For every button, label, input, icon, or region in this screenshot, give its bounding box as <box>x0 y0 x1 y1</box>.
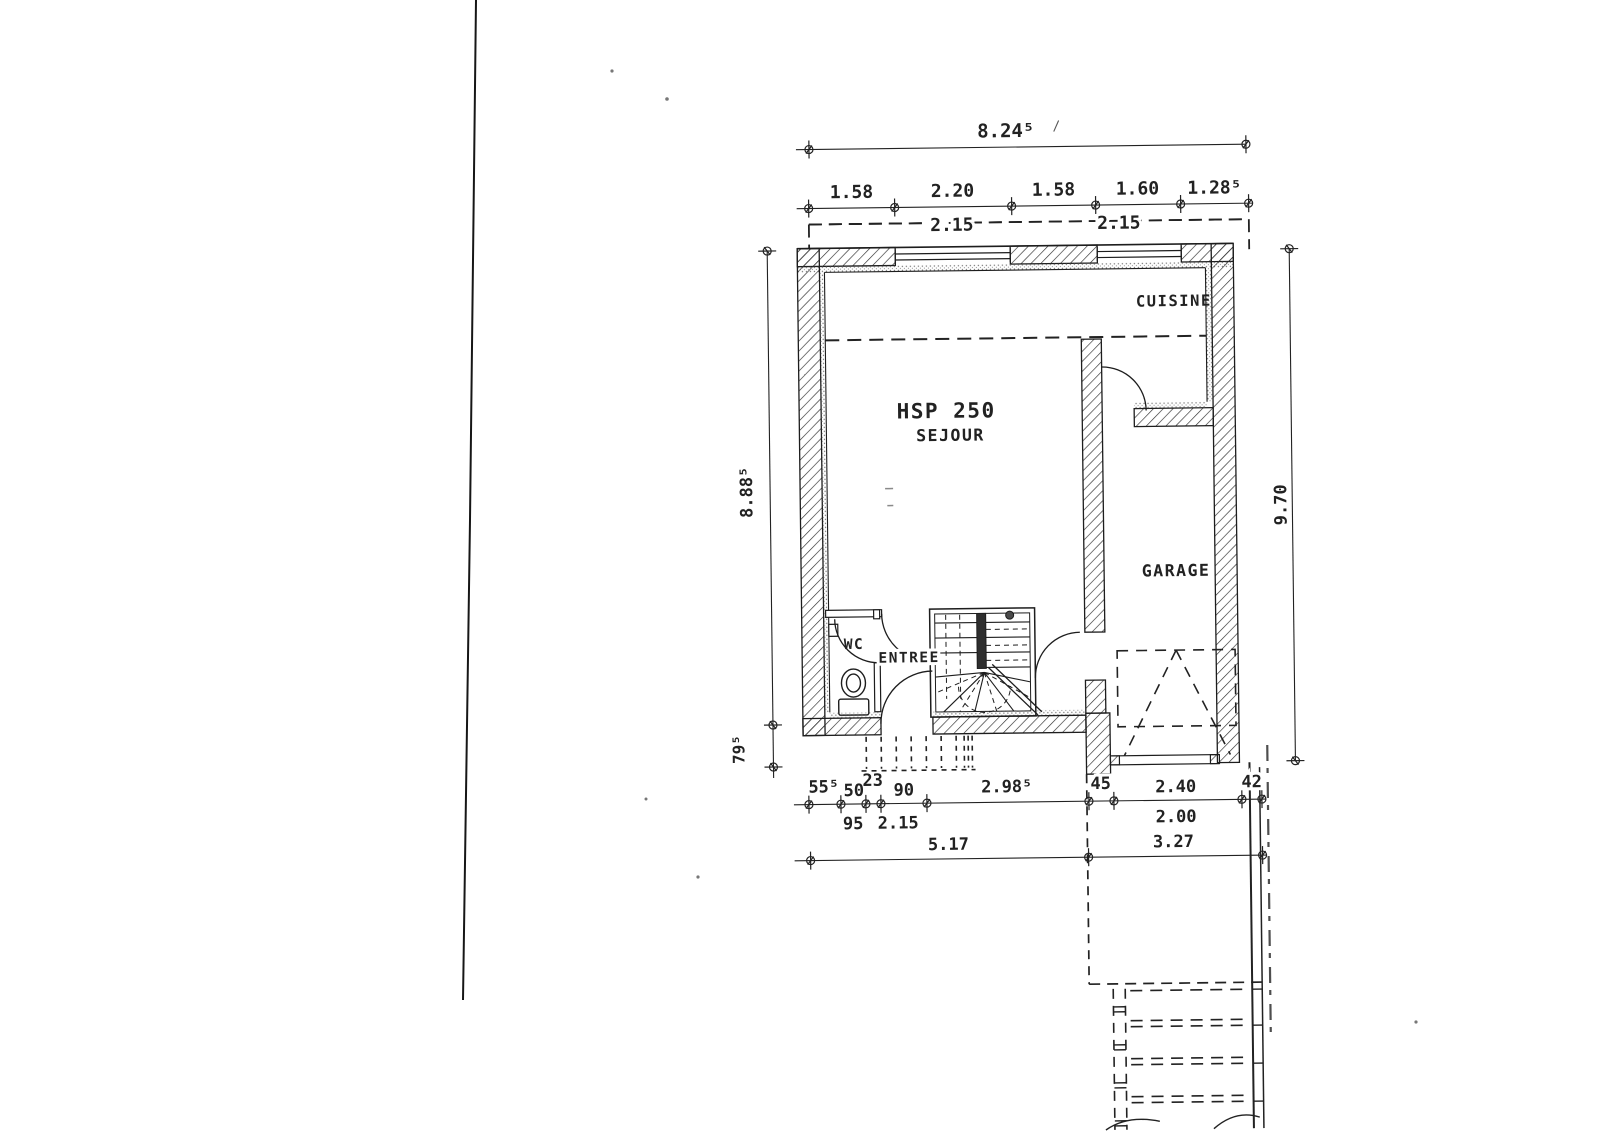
dim-bottom-sub-3: 2.00 <box>1156 807 1197 827</box>
page-fold-line <box>463 0 476 1000</box>
room-label-hsp: HSP 250 <box>896 398 995 423</box>
entrance-exterior-steps <box>861 736 975 771</box>
dim-left-offset: 79⁵ <box>729 735 748 764</box>
stair-treads-dashed <box>1130 989 1251 1102</box>
dim-bottom-8: 42 <box>1241 772 1262 792</box>
scan-specks <box>610 69 1417 1023</box>
room-label-wc: WC <box>844 637 865 653</box>
sejour-scan-marks <box>885 489 893 506</box>
dim-bottom-total-1: 5.17 <box>928 835 969 855</box>
garage-north-wall <box>1134 408 1213 427</box>
scanned-plan-page: 8.24⁵ 1.58 2.20 1.58 1.60 1.28⁵ 2.15 2.1… <box>0 0 1600 1131</box>
stair-cut-mark <box>988 664 1042 716</box>
kitchen-boundary-dashed <box>825 336 1206 341</box>
dim-top-seg-5: 1.28⁵ <box>1187 177 1241 199</box>
dim-bottom-2: 50 <box>843 781 864 801</box>
window-north-2 <box>1097 246 1181 261</box>
garage-door-sill <box>1110 755 1219 765</box>
dim-opening-2: 2.15 <box>1097 213 1141 235</box>
shrub-curve-left <box>1106 1119 1160 1130</box>
dim-bottom-1: 55⁵ <box>808 777 839 797</box>
room-label-garage: GARAGE <box>1142 561 1211 581</box>
plan-group: 8.24⁵ 1.58 2.20 1.58 1.60 1.28⁵ 2.15 2.1… <box>722 117 1309 1131</box>
room-label-sejour: SEJOUR <box>916 425 985 445</box>
dim-bottom-6: 45 <box>1090 774 1111 794</box>
toilet-icon <box>838 669 869 715</box>
sejour-garage-door-arc <box>1035 632 1081 678</box>
dim-top-seg-1: 1.58 <box>830 182 874 204</box>
window-north-1 <box>895 248 1010 263</box>
exterior-walls <box>797 243 1239 777</box>
dim-bottom-total-2: 3.27 <box>1153 832 1194 852</box>
dim-left-total: 8.88⁵ <box>737 467 758 518</box>
dim-top-seg-3: 1.58 <box>1032 179 1076 201</box>
garage-door-left-pier <box>1086 713 1111 774</box>
dim-bottom-4: 90 <box>893 780 914 800</box>
dim-bottom-7: 2.40 <box>1155 777 1196 797</box>
room-label-cuisine: CUISINE <box>1136 292 1212 311</box>
entrance-door-arc <box>880 671 933 724</box>
stair-newel-post <box>1006 611 1014 619</box>
dim-bottom-sub-1: 95 <box>843 814 864 834</box>
sejour-garage-wall <box>1081 339 1106 713</box>
dim-top-total: 8.24⁵ <box>977 120 1034 143</box>
dim-bottom-5: 2.98⁵ <box>981 777 1032 798</box>
dim-top-seg-4: 1.60 <box>1116 178 1160 200</box>
dim-right-total: 9.70 <box>1271 484 1291 525</box>
dim-bottom-3: 23 <box>862 771 883 791</box>
dim-top-seg-2: 2.20 <box>931 181 975 203</box>
staircase <box>930 608 1042 717</box>
dim-bottom-sub-2: 2.15 <box>878 813 919 833</box>
stair-stringer <box>977 613 987 668</box>
room-label-entree: ENTREE <box>878 650 940 667</box>
dim-opening-1: 2.15 <box>930 215 974 237</box>
floor-plan-drawing: 8.24⁵ 1.58 2.20 1.58 1.60 1.28⁵ 2.15 2.1… <box>0 0 1600 1131</box>
